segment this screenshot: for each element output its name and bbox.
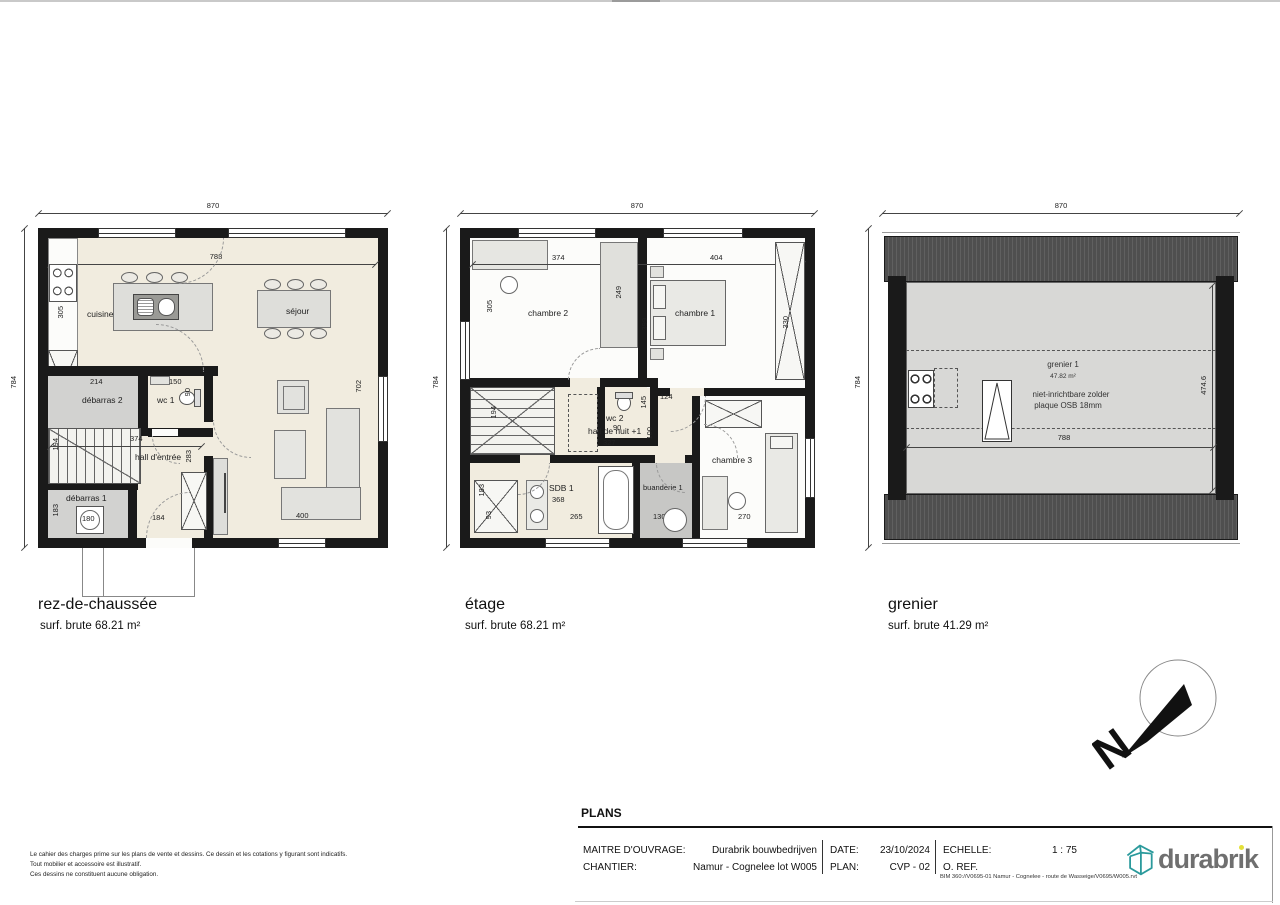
wall xyxy=(550,455,655,463)
table-extension xyxy=(934,368,958,408)
wardrobe-built-in xyxy=(775,242,805,380)
plan-area-etage: surf. brute 68.21 m² xyxy=(465,620,565,632)
dim-305: 305 xyxy=(486,300,494,313)
roof-edge-line xyxy=(882,543,1240,544)
wall xyxy=(470,378,570,387)
dim-784: 784 xyxy=(432,376,440,389)
plan-title-rdc: rez-de-chaussée xyxy=(38,596,157,614)
dim-93: 93 xyxy=(485,511,493,519)
dim-870: 870 xyxy=(1055,202,1068,210)
gable-wall-right xyxy=(1216,276,1234,500)
wall xyxy=(48,483,138,490)
wall xyxy=(470,455,520,463)
window xyxy=(805,438,815,498)
dim-line-4746 xyxy=(1212,285,1213,491)
room-label-debarras2: débarras 2 xyxy=(82,396,123,405)
room-label-grenier1: grenier 1 xyxy=(1047,360,1079,369)
wall xyxy=(138,376,148,436)
dim-265: 265 xyxy=(570,513,583,521)
roof-edge-line xyxy=(882,232,1240,233)
north-arrow: N xyxy=(1092,642,1232,782)
chair-icon xyxy=(287,279,304,290)
room-label-chambre2: chambre 2 xyxy=(528,309,568,318)
dim-784: 784 xyxy=(10,376,18,389)
dim-330: 330 xyxy=(782,316,790,329)
wc-sink xyxy=(150,376,170,385)
wall xyxy=(685,455,700,463)
floor-plan-etage: 870 784 chambre 2 374 404 305 249 xyxy=(460,228,815,548)
dim-100: 100 xyxy=(646,427,654,440)
stool-icon xyxy=(146,272,163,283)
chair-icon xyxy=(287,328,304,339)
sofa-horizontal xyxy=(281,487,361,520)
plan-title-etage: étage xyxy=(465,596,505,614)
roof-slope-bottom xyxy=(884,494,1238,540)
dim-327: 327 xyxy=(603,439,616,447)
nightstand xyxy=(650,266,664,278)
wall xyxy=(704,388,805,396)
sink-icon xyxy=(133,294,179,320)
door-opening xyxy=(152,429,178,436)
pillow xyxy=(653,316,666,340)
knee-wall-line xyxy=(906,428,1216,429)
sink-basin xyxy=(137,298,154,316)
toilet-icon xyxy=(615,392,631,411)
disclaimer-line1: Le cahier des charges prime sur les plan… xyxy=(30,851,347,858)
dim-line-870 xyxy=(460,213,815,214)
dim-line-784 xyxy=(24,228,25,548)
dim-line-784 xyxy=(868,228,869,548)
chair-icon xyxy=(264,328,281,339)
desk xyxy=(702,476,728,530)
dim-400: 400 xyxy=(296,512,309,520)
plan-title-grenier: grenier xyxy=(888,596,938,614)
label-note2: plaque OSB 18mm xyxy=(1034,401,1102,410)
window xyxy=(278,538,326,548)
durabrik-logo-text: durabrık xyxy=(1158,844,1258,875)
plan-sheet: 870 784 788 cuisine 305 séjour xyxy=(0,0,1280,905)
dim-305: 305 xyxy=(57,306,65,319)
roof-slope-top xyxy=(884,236,1238,282)
plan-area-rdc: surf. brute 68.21 m² xyxy=(40,620,140,632)
date-label: DATE: xyxy=(830,845,859,856)
dim-270: 270 xyxy=(738,513,751,521)
knee-wall-line xyxy=(906,350,1216,351)
titleblock-divider xyxy=(935,840,936,874)
wall xyxy=(638,238,647,378)
chair-icon xyxy=(310,328,327,339)
dim-line-784 xyxy=(446,228,447,548)
window xyxy=(460,321,470,380)
desk xyxy=(472,240,548,270)
label-area-inner: 47.82 m² xyxy=(1050,373,1076,380)
compass-needle xyxy=(1122,684,1192,758)
echelle-value: 1 : 75 xyxy=(1052,845,1077,856)
dim-line-870 xyxy=(38,213,388,214)
window xyxy=(98,228,176,238)
floor-plan-grenier: 870 784 grenier 1 47.82 m² niet-inrichtb… xyxy=(882,228,1240,548)
plan-area-grenier: surf. brute 41.29 m² xyxy=(888,620,988,632)
wall xyxy=(128,486,137,538)
hatch-ladder-icon xyxy=(983,381,1011,441)
table-icon xyxy=(908,370,934,408)
chair-icon xyxy=(264,279,281,290)
porch-outline xyxy=(82,548,195,597)
dim-870: 870 xyxy=(631,202,644,210)
pillow xyxy=(770,436,793,449)
maitre-value: Durabrik bouwbedrijven xyxy=(712,845,817,856)
dim-90: 90 xyxy=(184,388,192,396)
plan-value: CVP - 02 xyxy=(890,862,930,873)
bim-path: BIM 360://V0695-01 Namur - Cognelee - ro… xyxy=(940,874,1137,880)
dim-line-870 xyxy=(882,213,1240,214)
room-label-sdb1: SDB 1 xyxy=(549,484,574,493)
gable-wall-left xyxy=(888,276,906,500)
desk-chair-icon xyxy=(500,276,518,294)
window xyxy=(682,538,748,548)
window xyxy=(518,228,596,238)
armchair-cushion xyxy=(283,386,305,410)
front-door-opening xyxy=(146,538,192,548)
dim-180: 180 xyxy=(82,515,95,523)
dim-150: 150 xyxy=(169,378,182,386)
dim-249: 249 xyxy=(615,286,623,299)
logo-text-pre: durabr xyxy=(1158,844,1238,874)
dim-214: 214 xyxy=(90,378,103,386)
stool-icon xyxy=(121,272,138,283)
room-label-chambre1: chambre 1 xyxy=(675,309,715,318)
room-label-wc1: wc 1 xyxy=(157,396,174,405)
maitre-label: MAITRE D'OUVRAGE: xyxy=(583,845,685,856)
coffee-table xyxy=(274,430,306,479)
void-outline xyxy=(568,394,598,452)
durabrik-house-icon xyxy=(1122,840,1158,878)
dim-788: 788 xyxy=(1058,434,1071,442)
nightstand xyxy=(650,348,664,360)
disclaimer-line3: Ces dessins ne constituent aucune obliga… xyxy=(30,871,158,878)
logo-text-i: ı xyxy=(1238,844,1245,874)
window xyxy=(545,538,610,548)
floor-plan-rdc: 870 784 788 cuisine 305 séjour xyxy=(38,228,388,548)
dim-784: 784 xyxy=(854,376,862,389)
stairs xyxy=(48,428,141,484)
room-label-hall-de-nuit: hall de nuit +1 xyxy=(588,427,641,436)
wall xyxy=(600,378,658,387)
window xyxy=(228,228,346,238)
dim-283: 283 xyxy=(185,450,193,463)
chantier-label: CHANTIER: xyxy=(583,862,637,873)
titleblock-right-border xyxy=(1272,826,1273,903)
window xyxy=(378,376,388,442)
tv-icon xyxy=(224,473,226,513)
porch-divider xyxy=(103,548,104,596)
room-label-wc2: wc 2 xyxy=(606,414,623,423)
sink-basin xyxy=(530,509,544,523)
dim-374: 374 xyxy=(552,254,565,262)
logo-text-post: k xyxy=(1244,844,1258,874)
titleblock-heading: PLANS xyxy=(581,806,622,820)
washer-icon xyxy=(663,508,687,532)
date-value: 23/10/2024 xyxy=(880,845,930,856)
dim-line-788 xyxy=(906,447,1214,448)
room-label-sejour: séjour xyxy=(286,307,309,316)
stairs xyxy=(470,387,555,455)
titleblock-rule xyxy=(578,826,1273,828)
dim-194: 194 xyxy=(490,406,498,419)
desk-chair-icon xyxy=(728,492,746,510)
wall xyxy=(204,366,213,422)
bathtub-icon xyxy=(598,466,634,534)
sink-basin xyxy=(158,298,175,316)
dim-399: 399 xyxy=(641,318,649,331)
disclaimer-line2: Tout mobilier et accessoire est illustra… xyxy=(30,861,141,868)
chantier-value: Namur - Cognelee lot W005 xyxy=(693,862,817,873)
oref-label: O. REF. xyxy=(943,862,978,873)
top-edge-tab xyxy=(612,0,660,2)
label-note1: niet-inrichtbare zolder xyxy=(1033,390,1110,399)
wardrobe-built-in xyxy=(705,400,762,428)
dim-702: 702 xyxy=(355,380,363,393)
dim-183: 183 xyxy=(52,504,60,517)
chair-icon xyxy=(310,279,327,290)
room-label-debarras1: débarras 1 xyxy=(66,494,107,503)
attic-hatch xyxy=(982,380,1012,442)
dim-870: 870 xyxy=(207,202,220,210)
window xyxy=(663,228,743,238)
dim-145: 145 xyxy=(640,396,648,409)
plan-label: PLAN: xyxy=(830,862,859,873)
titleblock-bottom-border xyxy=(575,901,1273,902)
dim-368: 368 xyxy=(552,496,565,504)
room-label-cuisine: cuisine xyxy=(87,310,113,319)
pillow xyxy=(653,285,666,309)
stove-icon xyxy=(49,264,77,302)
dim-4746: 474.6 xyxy=(1200,376,1208,395)
dim-374: 374 xyxy=(130,435,143,443)
dim-404: 404 xyxy=(710,254,723,262)
titleblock-divider xyxy=(822,840,823,874)
echelle-label: ECHELLE: xyxy=(943,845,991,856)
dim-183: 183 xyxy=(478,484,486,497)
